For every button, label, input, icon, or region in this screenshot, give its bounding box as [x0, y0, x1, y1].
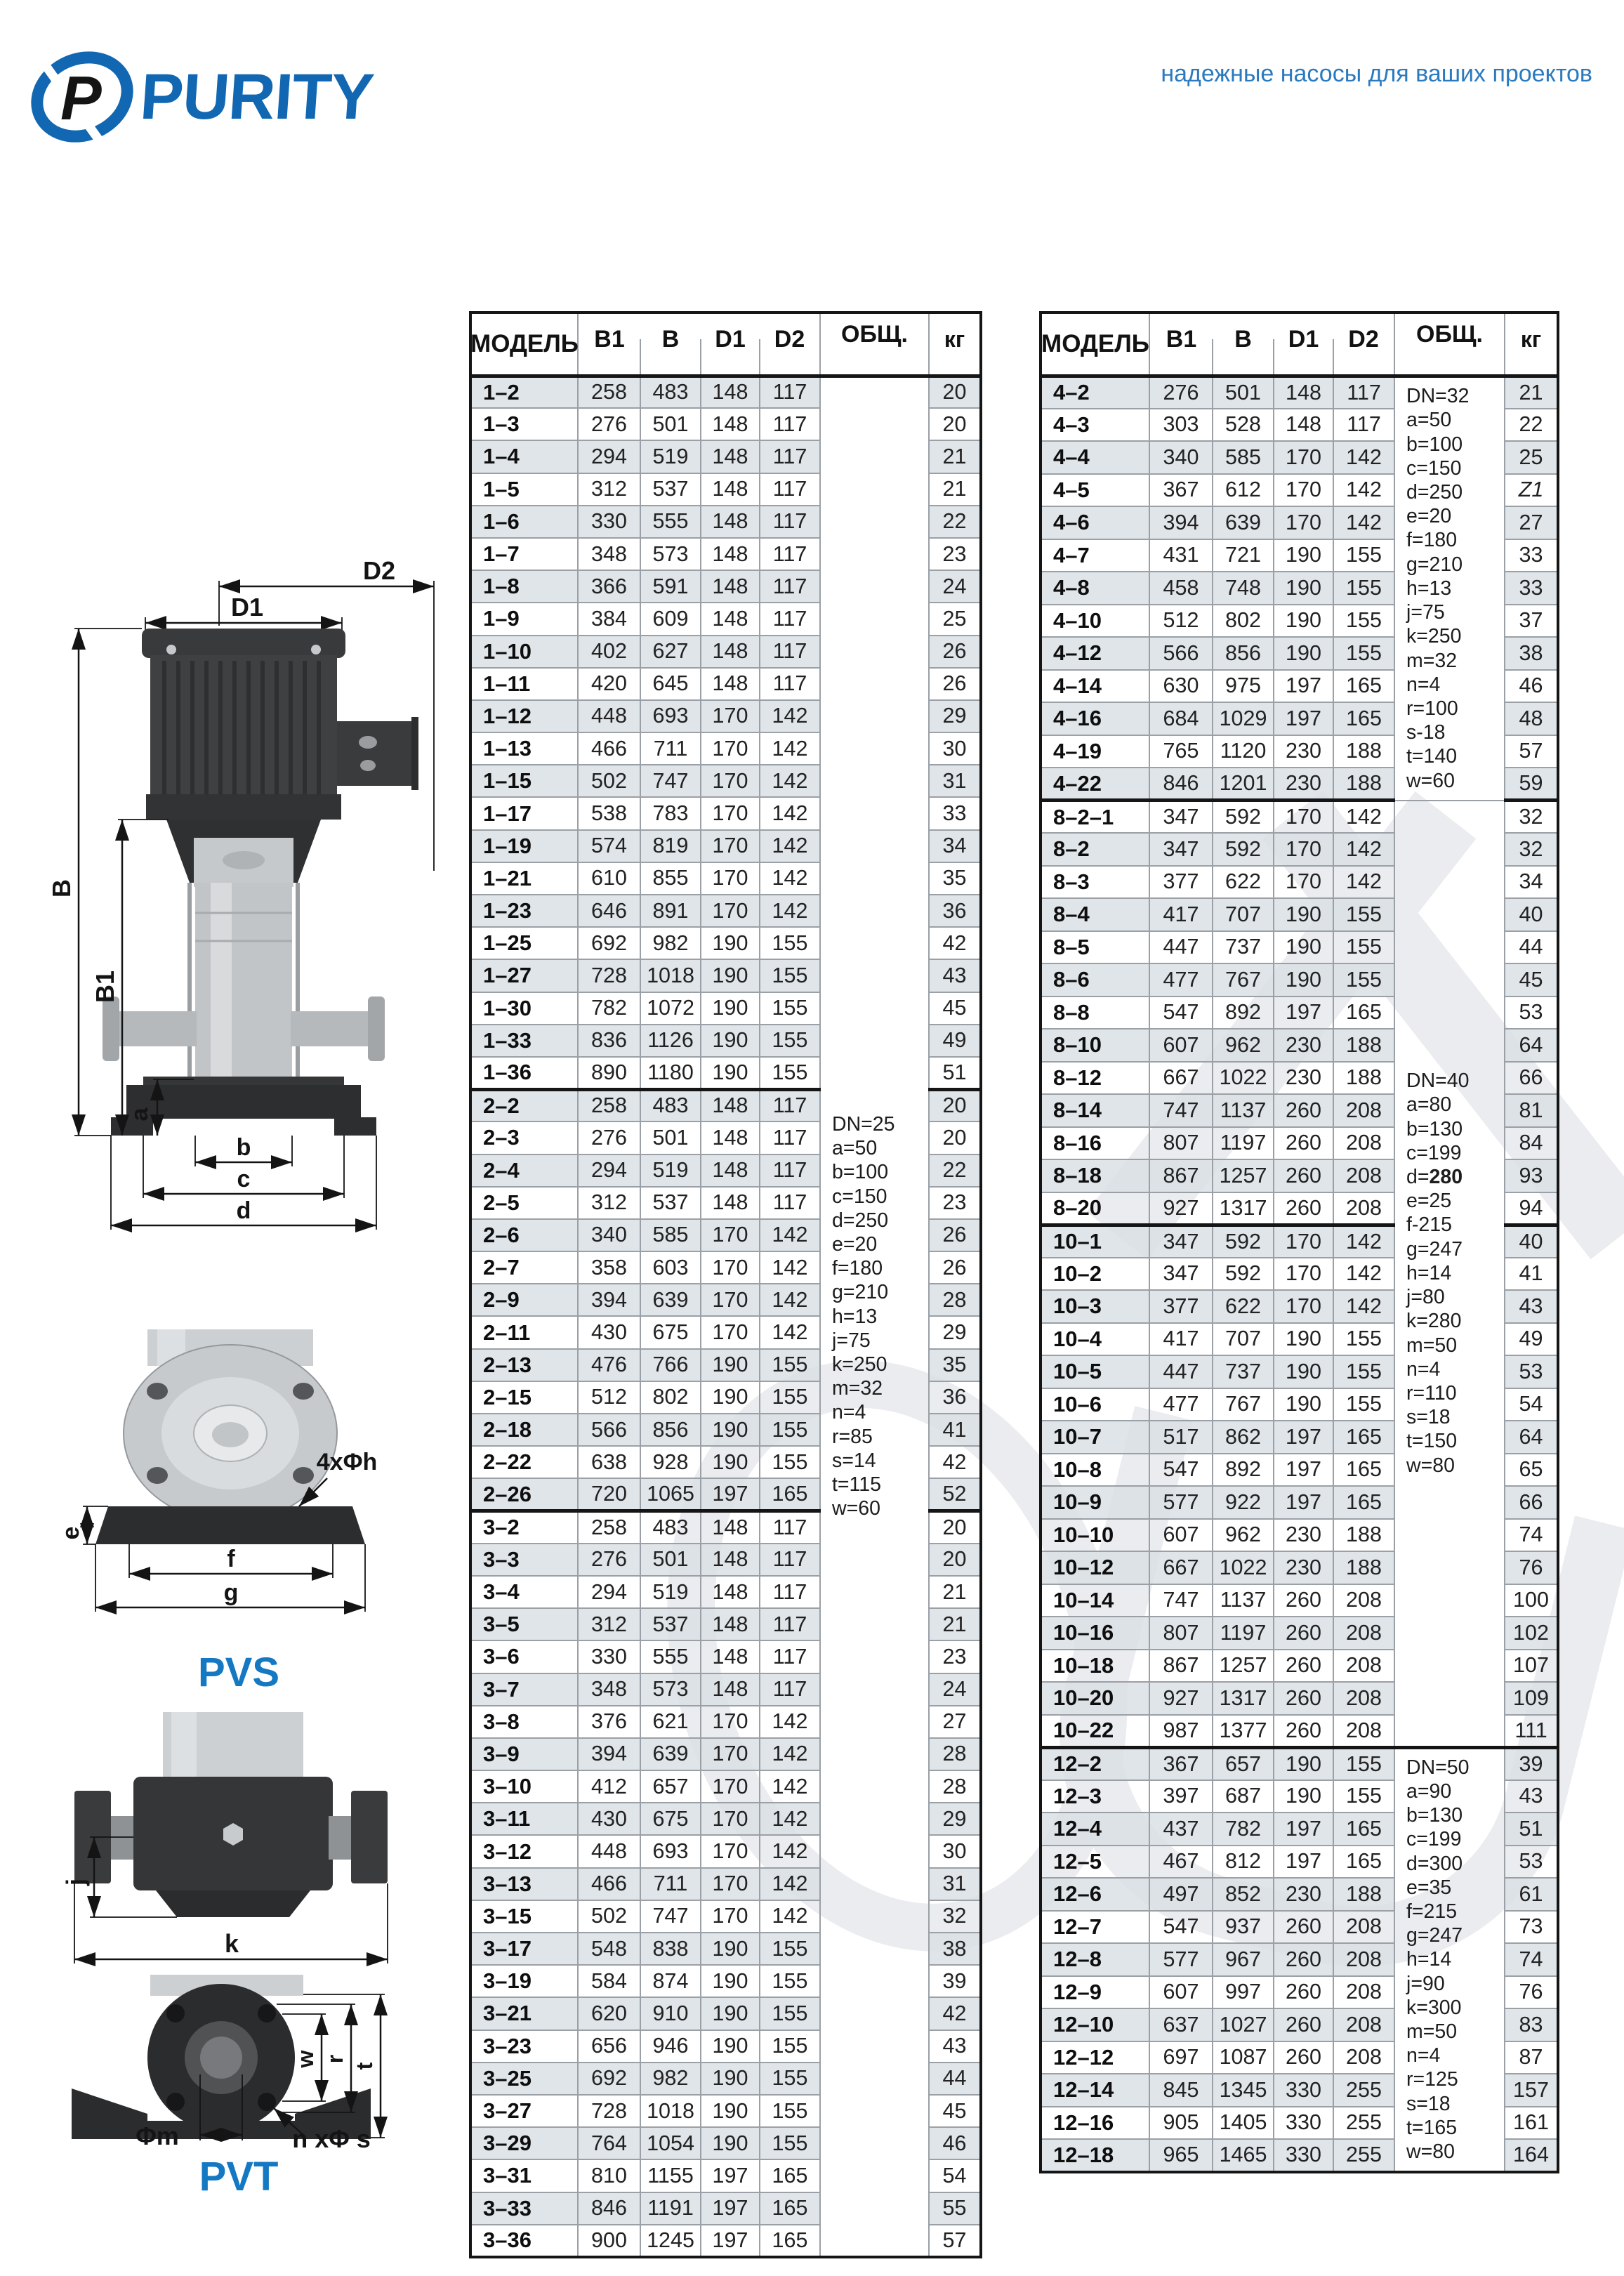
dim-cell: 155: [760, 2063, 820, 2095]
dim-cell: 148: [701, 376, 760, 408]
kg-cell: 42: [929, 1446, 981, 1478]
model-cell: 3–27: [470, 2095, 578, 2127]
dim-cell: 208: [1333, 1911, 1394, 1944]
model-cell: 4–10: [1041, 605, 1149, 638]
dim-cell: 497: [1149, 1878, 1213, 1911]
kg-cell: 26: [929, 1251, 981, 1284]
model-cell: 4–7: [1041, 539, 1149, 572]
model-cell: 8–14: [1041, 1094, 1149, 1127]
kg-cell: 31: [929, 1868, 981, 1900]
kg-cell: 30: [929, 732, 981, 765]
dim-cell: 230: [1274, 768, 1333, 801]
dim-cell: 117: [760, 1576, 820, 1608]
dim-cell: 197: [1274, 1486, 1333, 1519]
kg-cell: 30: [929, 1835, 981, 1867]
dim-cell: 890: [578, 1057, 640, 1089]
kg-cell: 22: [929, 1155, 981, 1187]
col-header-label: D1: [701, 326, 760, 362]
kg-cell: 38: [1505, 637, 1558, 670]
kg-cell: 94: [1505, 1192, 1558, 1225]
dim-cell: 170: [1274, 1225, 1333, 1258]
model-cell: 8–4: [1041, 898, 1149, 931]
dim-cell: 260: [1274, 1127, 1333, 1160]
col-header-model: МОДЕЛЬ: [1041, 313, 1149, 376]
dim-cell: 639: [640, 1738, 701, 1770]
dim-cell: 430: [578, 1803, 640, 1835]
model-cell: 12–3: [1041, 1780, 1149, 1813]
model-cell: 1–25: [470, 927, 578, 959]
model-cell: 12–8: [1041, 1943, 1149, 1976]
dim-cell: 766: [640, 1349, 701, 1381]
dim-cell: 197: [1274, 1813, 1333, 1846]
dim-cell: 117: [760, 1089, 820, 1121]
model-cell: 2–9: [470, 1284, 578, 1316]
dim-cell: 330: [578, 1640, 640, 1673]
dim-cell: 142: [760, 862, 820, 895]
model-cell: 1–2: [470, 376, 578, 408]
dim-cell: 621: [640, 1706, 701, 1738]
model-cell: 1–30: [470, 992, 578, 1025]
dim-cell: 165: [760, 2225, 820, 2257]
dim-cell: 430: [578, 1316, 640, 1348]
dim-cell: 117: [760, 538, 820, 570]
dim-cell: 155: [760, 1446, 820, 1478]
model-cell: 1–12: [470, 700, 578, 732]
dim-cell: 190: [701, 1381, 760, 1414]
col-header-b1: B1: [578, 313, 640, 376]
dim-cell: 197: [1274, 702, 1333, 735]
dim-cell: 747: [640, 1900, 701, 1933]
dim-cell: 962: [1213, 1519, 1274, 1552]
dim-cell: 276: [1149, 376, 1213, 409]
dim-cell: 117: [760, 1121, 820, 1154]
pump-inline-ports-diagram: j k: [51, 1712, 412, 1993]
dim-cell: 330: [1274, 2139, 1333, 2172]
dim-cell: 188: [1333, 1062, 1394, 1095]
dim-cell: 467: [1149, 1846, 1213, 1879]
dim-cell: 276: [578, 408, 640, 440]
dim-cell: 148: [701, 570, 760, 603]
dim-cell: 197: [701, 2159, 760, 2192]
dim-cell: 165: [1333, 1421, 1394, 1454]
dim-cell: 962: [1213, 1029, 1274, 1062]
dim-cell: 155: [1333, 572, 1394, 605]
dim-cell: 165: [760, 1478, 820, 1511]
dim-cell: 838: [640, 1933, 701, 1965]
model-cell: 10–18: [1041, 1650, 1149, 1683]
kg-cell: 22: [929, 506, 981, 538]
kg-cell: 20: [929, 408, 981, 440]
model-cell: 12–2: [1041, 1747, 1149, 1780]
dim-cell: 142: [760, 1803, 820, 1835]
dim-cell: 188: [1333, 1551, 1394, 1584]
kg-cell: 33: [1505, 539, 1558, 572]
dim-cell: 720: [578, 1478, 640, 1511]
kg-cell: 59: [1505, 768, 1558, 801]
model-cell: 3–33: [470, 2192, 578, 2225]
dim-cell: 155: [760, 1057, 820, 1089]
dim-cell: 190: [701, 2095, 760, 2127]
model-cell: 1–17: [470, 797, 578, 829]
dim-cell: 856: [640, 1414, 701, 1446]
col-header-model: МОДЕЛЬ: [470, 313, 578, 376]
table-row: 4–2276501148117DN=32a=50b=100c=150d=250e…: [1041, 376, 1558, 409]
dim-cell: 170: [701, 895, 760, 927]
dim-cell: 447: [1149, 1355, 1213, 1388]
dim-cell: 155: [1333, 931, 1394, 964]
dim-cell: 188: [1333, 1029, 1394, 1062]
dim-cell: 767: [1213, 963, 1274, 996]
model-cell: 1–36: [470, 1057, 578, 1089]
kg-cell: 46: [1505, 670, 1558, 703]
dim-cell: 1377: [1213, 1715, 1274, 1748]
model-cell: 1–10: [470, 636, 578, 668]
kg-cell: 35: [929, 862, 981, 895]
dim-cell: 394: [578, 1284, 640, 1316]
dim-cell: 142: [760, 1738, 820, 1770]
dim-cell: 260: [1274, 1650, 1333, 1683]
model-cell: 3–29: [470, 2127, 578, 2159]
dim-cell: 117: [760, 1187, 820, 1219]
dim-cell: 737: [1213, 1355, 1274, 1388]
dim-cell: 548: [578, 1933, 640, 1965]
dim-cell: 142: [1333, 1290, 1394, 1323]
dim-cell: 190: [701, 927, 760, 959]
col-header-label: B1: [579, 326, 640, 362]
dim-cell: 260: [1274, 1159, 1333, 1192]
dim-cell: 142: [760, 830, 820, 862]
bolt-holes-callout: 4xΦh: [317, 1449, 378, 1475]
kg-cell: 83: [1505, 2008, 1558, 2041]
common-dims-note-text: DN=40a=80b=130c=199d=280e=25f-215g=247h=…: [1395, 1069, 1504, 1477]
dim-cell: 170: [701, 1868, 760, 1900]
dim-cell: 1065: [640, 1478, 701, 1511]
model-cell: 12–16: [1041, 2107, 1149, 2140]
dim-cell: 208: [1333, 1192, 1394, 1225]
dim-cell: 197: [701, 2192, 760, 2225]
dim-cell: 922: [1213, 1486, 1274, 1519]
kg-cell: 23: [929, 538, 981, 570]
dim-cell: 1191: [640, 2192, 701, 2225]
dim-cell: 610: [578, 862, 640, 895]
model-cell: 8–8: [1041, 996, 1149, 1030]
model-cell: 12–5: [1041, 1846, 1149, 1879]
kg-cell: 42: [929, 927, 981, 959]
dim-cell: 190: [1274, 539, 1333, 572]
dim-cell: 190: [701, 1349, 760, 1381]
dim-cell: 905: [1149, 2107, 1213, 2140]
dim-label-k: k: [225, 1929, 239, 1958]
dim-cell: 1197: [1213, 1617, 1274, 1650]
dim-cell: 230: [1274, 1878, 1333, 1911]
kg-cell: 76: [1505, 1551, 1558, 1584]
dim-cell: 1029: [1213, 702, 1274, 735]
dim-cell: 142: [760, 765, 820, 797]
dim-cell: 142: [760, 1219, 820, 1251]
kg-cell: 161: [1505, 2107, 1558, 2140]
model-cell: 8–2: [1041, 833, 1149, 866]
dim-label-r: r: [322, 2055, 348, 2063]
dim-cell: 1126: [640, 1025, 701, 1057]
dim-cell: 208: [1333, 1127, 1394, 1160]
dim-cell: 155: [760, 1997, 820, 2030]
model-cell: 4–6: [1041, 506, 1149, 539]
dim-cell: 537: [640, 1608, 701, 1640]
dim-cell: 170: [1274, 506, 1333, 539]
kg-cell: 28: [929, 1284, 981, 1316]
common-dims-note: DN=50a=90b=130c=199d=300e=35f=215g=247h=…: [1394, 1747, 1505, 2172]
col-header-label: B: [1213, 326, 1274, 362]
dim-cell: 384: [578, 603, 640, 635]
dim-cell: 483: [640, 1511, 701, 1544]
kg-cell: 45: [929, 2095, 981, 2127]
model-cell: 2–5: [470, 1187, 578, 1219]
model-cell: 3–19: [470, 1965, 578, 1997]
dim-cell: 208: [1333, 2008, 1394, 2041]
model-cell: 3–23: [470, 2030, 578, 2063]
dim-cell: 547: [1149, 1454, 1213, 1487]
dim-cell: 165: [1333, 1454, 1394, 1487]
dim-cell: 737: [1213, 931, 1274, 964]
dim-cell: 566: [1149, 637, 1213, 670]
dim-cell: 592: [1213, 1225, 1274, 1258]
dim-cell: 165: [760, 2192, 820, 2225]
model-cell: 2–4: [470, 1155, 578, 1187]
dim-cell: 609: [640, 603, 701, 635]
model-cell: 10–6: [1041, 1388, 1149, 1421]
dim-cell: 148: [701, 1121, 760, 1154]
dim-cell: 982: [640, 2063, 701, 2095]
col-header-label: кг: [930, 327, 979, 361]
kg-cell: 100: [1505, 1584, 1558, 1617]
kg-cell: 22: [1505, 409, 1558, 442]
dim-cell: 155: [760, 2030, 820, 2063]
dim-cell: 466: [578, 732, 640, 765]
dim-cell: 987: [1149, 1715, 1213, 1748]
dim-cell: 170: [701, 1219, 760, 1251]
dim-cell: 258: [578, 376, 640, 408]
dim-cell: 937: [1213, 1911, 1274, 1944]
col-header-label: D2: [760, 326, 819, 362]
kg-cell: 21: [929, 1576, 981, 1608]
col-header-d2: D2: [760, 313, 820, 376]
dim-cell: 258: [578, 1511, 640, 1544]
dim-cell: 117: [760, 603, 820, 635]
dim-cell: 584: [578, 1965, 640, 1997]
dim-cell: 603: [640, 1251, 701, 1284]
common-dims-note-text: DN=25a=50b=100c=150d=250e=20f=180g=210h=…: [821, 1112, 928, 1520]
model-cell: 4–22: [1041, 768, 1149, 801]
dim-cell: 230: [1274, 1029, 1333, 1062]
model-cell: 2–7: [470, 1251, 578, 1284]
dim-cell: 1245: [640, 2225, 701, 2257]
dim-cell: 260: [1274, 1715, 1333, 1748]
dim-cell: 819: [640, 830, 701, 862]
kg-cell: 66: [1505, 1486, 1558, 1519]
dim-cell: 190: [1274, 931, 1333, 964]
kg-cell: 27: [1505, 506, 1558, 539]
dim-cell: 574: [578, 830, 640, 862]
dim-cell: 312: [578, 473, 640, 506]
dim-cell: 721: [1213, 539, 1274, 572]
dim-cell: 675: [640, 1316, 701, 1348]
dim-cell: 208: [1333, 1976, 1394, 2009]
dim-cell: 142: [760, 1251, 820, 1284]
kg-cell: 49: [929, 1025, 981, 1057]
model-cell: 3–36: [470, 2225, 578, 2257]
dim-cell: 782: [578, 992, 640, 1025]
dim-cell: 639: [640, 1284, 701, 1316]
model-cell: 10–9: [1041, 1486, 1149, 1519]
model-cell: 2–6: [470, 1219, 578, 1251]
dim-cell: 687: [1213, 1780, 1274, 1813]
dim-cell: 347: [1149, 833, 1213, 866]
kg-cell: 65: [1505, 1454, 1558, 1487]
dim-cell: 190: [1274, 1355, 1333, 1388]
dim-cell: 639: [1213, 506, 1274, 539]
dim-cell: 255: [1333, 2139, 1394, 2172]
dim-cell: 645: [640, 668, 701, 700]
dim-cell: 155: [1333, 539, 1394, 572]
model-cell: 8–5: [1041, 931, 1149, 964]
dim-cell: 528: [1213, 409, 1274, 442]
dim-cell: 208: [1333, 1682, 1394, 1715]
model-cell: 1–23: [470, 895, 578, 927]
dim-cell: 519: [640, 1576, 701, 1608]
kg-cell: 32: [929, 1900, 981, 1933]
dim-cell: 155: [1333, 1323, 1394, 1356]
kg-cell: 24: [929, 570, 981, 603]
dim-cell: 782: [1213, 1813, 1274, 1846]
kg-cell: 20: [929, 376, 981, 408]
dim-cell: 155: [760, 1025, 820, 1057]
col-header-label: D2: [1333, 326, 1394, 362]
dim-cell: 155: [1333, 1780, 1394, 1813]
dim-cell: 845: [1149, 2074, 1213, 2107]
dim-cell: 855: [640, 862, 701, 895]
col-header-label: B: [640, 326, 701, 362]
dim-cell: 155: [760, 1381, 820, 1414]
dim-cell: 142: [1333, 866, 1394, 899]
dim-cell: 707: [1213, 898, 1274, 931]
dim-cell: 188: [1333, 768, 1394, 801]
col-header-d1: D1: [1274, 313, 1333, 376]
dim-cell: 148: [1274, 409, 1333, 442]
dim-cell: 547: [1149, 1911, 1213, 1944]
dim-cell: 142: [1333, 506, 1394, 539]
dim-cell: 862: [1213, 1421, 1274, 1454]
dim-cell: 190: [701, 1414, 760, 1446]
dim-cell: 208: [1333, 1094, 1394, 1127]
model-cell: 8–2–1: [1041, 801, 1149, 834]
dim-cell: 402: [578, 636, 640, 668]
dim-cell: 592: [1213, 1258, 1274, 1291]
kg-cell: 40: [1505, 898, 1558, 931]
dim-cell: 148: [701, 1187, 760, 1219]
table-row: 8–2–1347592170142DN=40a=80b=130c=199d=28…: [1041, 801, 1558, 834]
dim-cell: 142: [760, 1706, 820, 1738]
dim-cell: 927: [1149, 1682, 1213, 1715]
dim-cell: 258: [578, 1089, 640, 1121]
kg-cell: 64: [1505, 1029, 1558, 1062]
col-header-label: кг: [1505, 327, 1557, 361]
dim-cell: 142: [760, 1316, 820, 1348]
dim-cell: 190: [1274, 1747, 1333, 1780]
dim-cell: 448: [578, 1835, 640, 1867]
dim-cell: 190: [701, 2063, 760, 2095]
dim-cell: 728: [578, 2095, 640, 2127]
header-row: МОДЕЛЬB1BD1D2ОБЩ.кг: [1041, 313, 1558, 376]
dim-cell: 477: [1149, 963, 1213, 996]
dim-cell: 117: [760, 1640, 820, 1673]
dim-cell: 312: [578, 1608, 640, 1640]
dim-cell: 348: [578, 538, 640, 570]
dim-cell: 591: [640, 570, 701, 603]
model-cell: 1–9: [470, 603, 578, 635]
dim-cell: 208: [1333, 1943, 1394, 1976]
model-cell: 8–6: [1041, 963, 1149, 996]
dim-cell: 376: [578, 1706, 640, 1738]
dim-cell: 747: [640, 765, 701, 797]
dim-cell: 358: [578, 1251, 640, 1284]
model-cell: 2–18: [470, 1414, 578, 1446]
model-cell: 2–3: [470, 1121, 578, 1154]
dim-cell: 555: [640, 506, 701, 538]
dim-cell: 997: [1213, 1976, 1274, 2009]
dim-cell: 155: [760, 1349, 820, 1381]
dim-cell: 458: [1149, 572, 1213, 605]
model-cell: 3–25: [470, 2063, 578, 2095]
dim-cell: 170: [701, 1738, 760, 1770]
dim-cell: 620: [578, 1997, 640, 2030]
dim-cell: 656: [578, 2030, 640, 2063]
dim-cell: 637: [1149, 2008, 1213, 2041]
kg-cell: 66: [1505, 1062, 1558, 1095]
dim-cell: 417: [1149, 1323, 1213, 1356]
dim-cell: 537: [640, 1187, 701, 1219]
dim-cell: 208: [1333, 1159, 1394, 1192]
dim-cell: 155: [760, 2127, 820, 2159]
model-cell: 3–8: [470, 1706, 578, 1738]
kg-cell: 37: [1505, 605, 1558, 638]
model-cell: 3–4: [470, 1576, 578, 1608]
kg-cell: 74: [1505, 1519, 1558, 1552]
dim-cell: 170: [701, 700, 760, 732]
model-cell: 10–10: [1041, 1519, 1149, 1552]
kg-cell: Z1: [1505, 474, 1558, 507]
dim-cell: 965: [1149, 2139, 1213, 2172]
dim-cell: 170: [701, 1770, 760, 1803]
dim-cell: 142: [760, 1835, 820, 1867]
dim-cell: 190: [701, 2030, 760, 2063]
dim-cell: 1345: [1213, 2074, 1274, 2107]
dim-cell: 867: [1149, 1650, 1213, 1683]
dim-cell: 170: [701, 862, 760, 895]
col-header-obsh: ОБЩ.: [1394, 313, 1505, 376]
model-cell: 8–18: [1041, 1159, 1149, 1192]
kg-cell: 25: [1505, 441, 1558, 474]
kg-cell: 29: [929, 1316, 981, 1348]
dim-cell: 255: [1333, 2107, 1394, 2140]
kg-cell: 43: [1505, 1780, 1558, 1813]
dim-cell: 142: [1333, 441, 1394, 474]
dim-cell: 142: [1333, 1225, 1394, 1258]
dim-cell: 667: [1149, 1062, 1213, 1095]
dim-cell: 188: [1333, 735, 1394, 768]
dim-cell: 117: [760, 440, 820, 473]
dim-cell: 607: [1149, 1029, 1213, 1062]
common-dims-note: DN=40a=80b=130c=199d=280e=25f-215g=247h=…: [1394, 801, 1505, 1748]
